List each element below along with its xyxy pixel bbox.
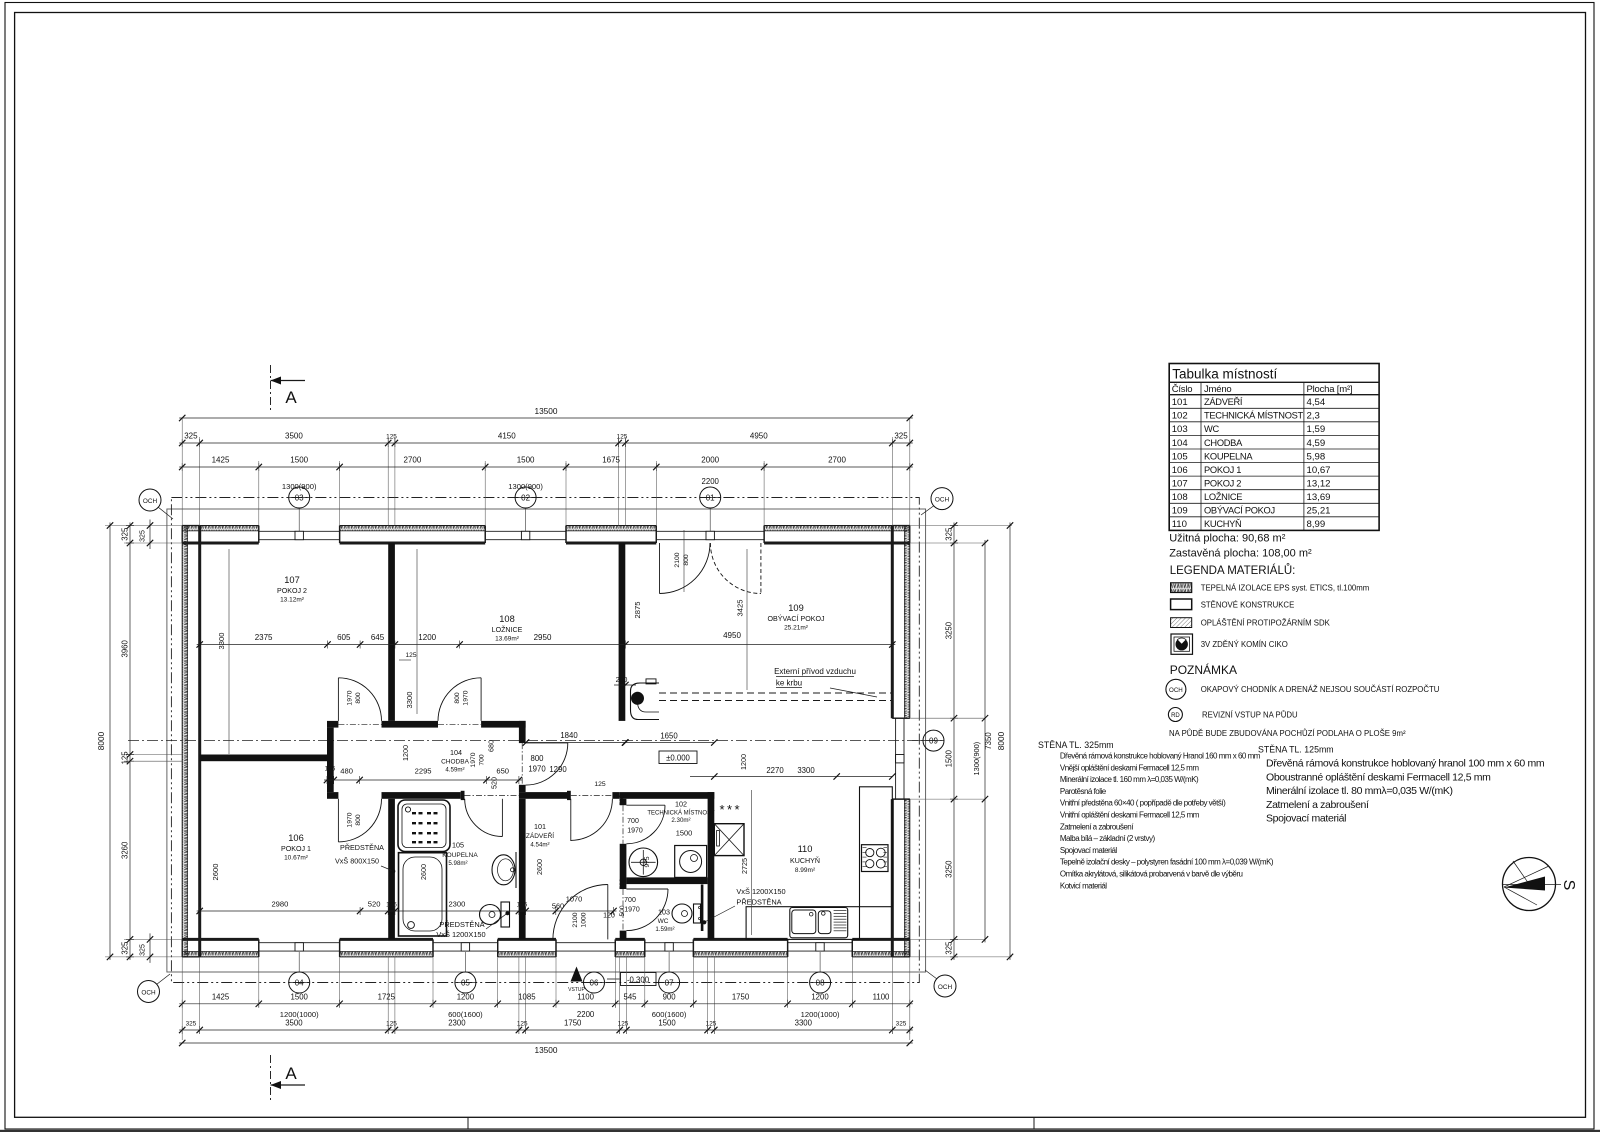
svg-text:1500: 1500	[290, 456, 308, 465]
svg-text:3300: 3300	[795, 1019, 813, 1028]
svg-text:1970: 1970	[528, 765, 546, 774]
svg-text:REVIZNÍ VSTUP NA PŮDU: REVIZNÍ VSTUP NA PŮDU	[1202, 710, 1298, 719]
svg-text:3250: 3250	[945, 621, 954, 639]
svg-text:Jméno: Jméno	[1204, 384, 1232, 395]
svg-text:Vnitřní předstěna 60×40 ( popř: Vnitřní předstěna 60×40 ( popřípadě dle …	[1060, 799, 1226, 808]
svg-text:13500: 13500	[534, 1045, 557, 1055]
svg-text:520: 520	[368, 900, 381, 909]
svg-text:1840: 1840	[560, 731, 578, 740]
svg-text:1750: 1750	[732, 992, 750, 1001]
svg-text:Externí přívod vzduchu: Externí přívod vzduchu	[774, 667, 856, 676]
svg-text:1425: 1425	[212, 992, 230, 1001]
svg-text:975: 975	[644, 856, 651, 867]
svg-text:520: 520	[490, 777, 499, 789]
svg-text:1300(900): 1300(900)	[282, 482, 317, 491]
svg-text:*: *	[734, 802, 739, 817]
svg-text:500: 500	[619, 905, 626, 916]
svg-text:2270: 2270	[766, 766, 784, 775]
svg-text:*: *	[727, 802, 732, 817]
svg-text:Minerální izolace tl. 80 mmλ=0: Minerální izolace tl. 80 mmλ=0,035 W/(mK…	[1266, 785, 1453, 797]
svg-text:1500: 1500	[676, 829, 692, 838]
svg-text:500: 500	[619, 878, 626, 889]
svg-text:2000: 2000	[701, 456, 719, 465]
svg-text:101: 101	[534, 822, 546, 831]
svg-text:325: 325	[140, 944, 147, 956]
svg-text:Plocha [m²]: Plocha [m²]	[1307, 384, 1353, 395]
svg-text:325: 325	[945, 941, 954, 955]
svg-text:480: 480	[340, 767, 353, 776]
svg-text:OCH: OCH	[143, 498, 158, 505]
svg-text:109: 109	[1172, 506, 1188, 517]
svg-text:09: 09	[929, 737, 938, 746]
svg-text:Dřevěná rámová konstrukce hobl: Dřevěná rámová konstrukce hoblovaný Hran…	[1060, 752, 1261, 761]
svg-text:125: 125	[618, 1021, 629, 1028]
svg-text:TEPELNÁ IZOLACE EPS syst. ETIC: TEPELNÁ IZOLACE EPS syst. ETICS, tl.100m…	[1201, 584, 1370, 593]
svg-text:110: 110	[1172, 519, 1187, 530]
svg-text:OKAPOVÝ CHODNÍK A DRENÁŽ NEJSO: OKAPOVÝ CHODNÍK A DRENÁŽ NEJSOU SOUČÁSTÍ…	[1201, 685, 1440, 694]
svg-text:NA PŮDĚ BUDE ZBUDOVÁNA POCHŮZÍ: NA PŮDĚ BUDE ZBUDOVÁNA POCHŮZÍ PODLAHA O…	[1169, 729, 1406, 738]
svg-text:1970: 1970	[470, 752, 477, 767]
svg-text:2200: 2200	[702, 477, 720, 486]
svg-text:1970: 1970	[624, 907, 640, 914]
svg-text:3425: 3425	[736, 600, 745, 617]
svg-text:ke krbu: ke krbu	[776, 679, 802, 688]
svg-text:*: *	[719, 802, 724, 817]
svg-text:325: 325	[945, 527, 954, 541]
svg-text:05: 05	[461, 979, 470, 988]
svg-text:108: 108	[499, 614, 515, 624]
svg-text:2100: 2100	[572, 912, 579, 927]
svg-text:120: 120	[603, 913, 615, 920]
svg-text:325: 325	[186, 1021, 197, 1028]
svg-text:Zastavěná plocha: 108,00 m²: Zastavěná plocha: 108,00 m²	[1169, 548, 1312, 560]
svg-text:1200: 1200	[739, 754, 748, 770]
svg-text:110: 110	[798, 844, 813, 854]
svg-text:OCH: OCH	[1169, 687, 1183, 694]
svg-text:3250: 3250	[945, 860, 954, 878]
svg-text:560: 560	[552, 902, 564, 911]
svg-text:1970: 1970	[627, 828, 643, 835]
svg-text:4950: 4950	[723, 631, 741, 640]
svg-text:102: 102	[675, 800, 687, 809]
svg-text:POKOJ 2: POKOJ 2	[1204, 479, 1241, 489]
svg-text:325: 325	[894, 432, 908, 441]
svg-text:2980: 2980	[271, 900, 288, 909]
svg-text:4.54m²: 4.54m²	[530, 842, 549, 849]
svg-text:PŘEDSTĚNA: PŘEDSTĚNA	[439, 920, 484, 929]
svg-text:2600: 2600	[419, 864, 428, 880]
svg-text:605: 605	[337, 633, 351, 642]
svg-text:S: S	[1560, 880, 1577, 891]
svg-text:STĚNA TL. 325mm: STĚNA TL. 325mm	[1038, 740, 1114, 750]
svg-text:10,67: 10,67	[1307, 465, 1331, 476]
svg-text:25,21: 25,21	[1307, 506, 1331, 517]
svg-text:125: 125	[517, 1021, 528, 1028]
svg-text:KOUPELNA: KOUPELNA	[1204, 451, 1253, 461]
svg-text:Spojovací materiál: Spojovací materiál	[1060, 846, 1118, 855]
svg-text:1425: 1425	[212, 456, 230, 465]
svg-text:125: 125	[405, 652, 416, 659]
svg-text:07: 07	[665, 979, 674, 988]
svg-text:OBÝVACÍ POKOJ: OBÝVACÍ POKOJ	[1204, 506, 1275, 516]
svg-text:101: 101	[1172, 397, 1188, 408]
svg-text:106: 106	[288, 833, 304, 843]
svg-text:325: 325	[121, 941, 130, 955]
svg-text:800: 800	[454, 692, 461, 704]
svg-text:2600: 2600	[211, 864, 220, 881]
svg-text:1500: 1500	[658, 1019, 676, 1028]
svg-text:125: 125	[706, 1021, 717, 1028]
svg-text:8.99m²: 8.99m²	[795, 867, 816, 874]
svg-text:VxŠ 800X150: VxŠ 800X150	[335, 857, 379, 866]
svg-text:500: 500	[619, 794, 626, 805]
svg-text:2375: 2375	[255, 633, 273, 642]
svg-text:125: 125	[594, 781, 606, 788]
svg-text:680: 680	[487, 740, 496, 752]
svg-text:1970: 1970	[463, 690, 470, 705]
svg-text:1.59m²: 1.59m²	[655, 926, 674, 933]
svg-text:Užitná plocha: 90,68 m²: Užitná plocha: 90,68 m²	[1169, 533, 1286, 545]
svg-text:2875: 2875	[633, 602, 642, 619]
svg-text:105: 105	[452, 841, 464, 850]
svg-text:03: 03	[295, 494, 304, 503]
svg-text:3500: 3500	[285, 1019, 303, 1028]
svg-text:8,99: 8,99	[1307, 519, 1326, 530]
svg-text:125: 125	[617, 434, 628, 441]
svg-text:2300: 2300	[448, 900, 465, 909]
svg-text:3500: 3500	[285, 432, 303, 441]
svg-text:LOŽNICE: LOŽNICE	[492, 625, 523, 634]
svg-text:3300: 3300	[797, 766, 815, 775]
svg-text:Malba bílá – základní (2 vrstv: Malba bílá – základní (2 vrstvy)	[1060, 834, 1156, 843]
svg-text:CHODBA: CHODBA	[441, 759, 469, 766]
svg-text:CHODBA: CHODBA	[1204, 438, 1243, 448]
svg-text:VxŠ 1200X150: VxŠ 1200X150	[736, 887, 785, 896]
svg-text:800: 800	[355, 814, 362, 826]
svg-text:325: 325	[896, 1021, 907, 1028]
svg-text:1200: 1200	[401, 745, 410, 761]
svg-text:25.21m²: 25.21m²	[784, 625, 809, 632]
svg-text:ZÁDVEŘÍ: ZÁDVEŘÍ	[526, 831, 554, 840]
svg-text:±0.000: ±0.000	[666, 754, 690, 763]
svg-text:1,59: 1,59	[1307, 424, 1326, 435]
svg-text:5,98: 5,98	[1307, 451, 1326, 462]
svg-text:8000: 8000	[996, 731, 1006, 750]
svg-text:107: 107	[284, 575, 300, 585]
svg-text:TECHNICKÁ MÍSTNOST: TECHNICKÁ MÍSTNOST	[647, 810, 715, 817]
svg-text:102: 102	[1172, 411, 1188, 422]
svg-text:1970: 1970	[347, 690, 354, 705]
svg-text:4150: 4150	[498, 432, 516, 441]
svg-text:2725: 2725	[740, 858, 749, 874]
svg-text:1300(900): 1300(900)	[508, 482, 543, 491]
svg-text:1500: 1500	[291, 992, 309, 1001]
svg-text:06: 06	[590, 979, 599, 988]
svg-text:2700: 2700	[828, 456, 846, 465]
svg-text:13,69: 13,69	[1307, 492, 1331, 503]
svg-text:125: 125	[121, 751, 130, 765]
svg-text:4,54: 4,54	[1307, 397, 1326, 408]
svg-text:LOŽNICE: LOŽNICE	[1204, 492, 1242, 502]
svg-text:325: 325	[121, 527, 130, 541]
svg-text:OCH: OCH	[938, 984, 953, 991]
svg-text:104: 104	[450, 748, 462, 757]
svg-text:1970: 1970	[347, 812, 354, 827]
svg-text:LEGENDA MATERIÁLŮ:: LEGENDA MATERIÁLŮ:	[1170, 564, 1296, 577]
svg-text:13,12: 13,12	[1307, 479, 1331, 490]
svg-text:PŘEDSTĚNA: PŘEDSTĚNA	[340, 843, 384, 852]
svg-text:STĚNA TL. 125mm: STĚNA TL. 125mm	[1258, 745, 1334, 755]
svg-text:4.59m²: 4.59m²	[445, 767, 464, 774]
svg-text:A: A	[285, 1064, 297, 1083]
svg-text:KUCHYŇ: KUCHYŇ	[1204, 519, 1241, 529]
svg-text:2.30m²: 2.30m²	[671, 817, 690, 824]
svg-text:01: 01	[706, 494, 715, 503]
svg-text:125: 125	[386, 434, 397, 441]
svg-text:Tepelně izolační desky – polys: Tepelně izolační desky – polystyren fasá…	[1060, 858, 1274, 867]
svg-text:13.12m²: 13.12m²	[280, 597, 305, 604]
svg-text:A: A	[285, 388, 297, 407]
svg-text:2600: 2600	[535, 859, 544, 875]
svg-text:Vnější opláštění deskami Ferma: Vnější opláštění deskami Fermacell 12,5 …	[1060, 763, 1199, 772]
svg-text:7350: 7350	[984, 732, 993, 750]
svg-text:125: 125	[386, 902, 397, 909]
svg-text:1290: 1290	[549, 765, 567, 774]
svg-text:04: 04	[295, 979, 304, 988]
svg-text:08: 08	[816, 979, 825, 988]
svg-text:8000: 8000	[96, 731, 106, 750]
svg-text:2295: 2295	[415, 767, 432, 776]
svg-text:1500: 1500	[945, 749, 954, 767]
svg-text:1650: 1650	[660, 732, 678, 741]
svg-text:1085: 1085	[518, 992, 536, 1001]
svg-text:3960: 3960	[121, 639, 130, 657]
svg-text:325: 325	[140, 530, 147, 542]
svg-text:645: 645	[371, 633, 385, 642]
svg-text:OCH: OCH	[935, 497, 950, 504]
svg-text:800: 800	[530, 754, 544, 763]
svg-text:02: 02	[521, 494, 530, 503]
svg-text:700: 700	[624, 897, 636, 904]
svg-text:ZÁDVEŘÍ: ZÁDVEŘÍ	[1204, 397, 1243, 407]
svg-text:1200: 1200	[811, 992, 829, 1001]
svg-text:STĚNOVÉ KONSTRUKCE: STĚNOVÉ KONSTRUKCE	[1201, 600, 1295, 609]
svg-text:2300: 2300	[448, 1019, 466, 1028]
svg-text:800: 800	[355, 692, 362, 704]
svg-text:Dřevěná rámová konstrukce hobl: Dřevěná rámová konstrukce hoblovaný hran…	[1266, 758, 1545, 770]
svg-text:Zatmelení a zabroušení: Zatmelení a zabroušení	[1060, 822, 1134, 831]
svg-text:OPLÁŠTĚNÍ PROTIPOŽÁRNÍM SDK: OPLÁŠTĚNÍ PROTIPOŽÁRNÍM SDK	[1201, 619, 1331, 628]
svg-text:650: 650	[496, 767, 509, 776]
svg-text:KOUPELNA: KOUPELNA	[442, 852, 478, 859]
svg-text:1725: 1725	[378, 992, 396, 1001]
svg-text:Minerální izolace tl. 160 mm λ: Minerální izolace tl. 160 mm λ=0,035 W/(…	[1060, 775, 1199, 784]
svg-text:RD: RD	[1171, 713, 1180, 719]
svg-text:108: 108	[1172, 492, 1188, 503]
svg-text:2,3: 2,3	[1307, 411, 1320, 422]
svg-text:Omítka akrylátová, silikátová: Omítka akrylátová, silikátová probarvená…	[1060, 870, 1243, 879]
svg-text:1750: 1750	[564, 1019, 582, 1028]
svg-text:WC: WC	[658, 918, 669, 925]
svg-text:3260: 3260	[121, 841, 130, 859]
svg-text:4,59: 4,59	[1307, 438, 1326, 449]
svg-text:800: 800	[683, 554, 690, 566]
svg-text:2100: 2100	[674, 552, 681, 567]
svg-text:1000: 1000	[581, 912, 588, 927]
svg-text:103: 103	[1172, 424, 1188, 435]
svg-text:103: 103	[658, 908, 670, 917]
svg-text:Parotěsná folie: Parotěsná folie	[1060, 787, 1107, 796]
svg-text:1675: 1675	[602, 456, 620, 465]
svg-text:Spojovací materiál: Spojovací materiál	[1266, 813, 1346, 825]
svg-text:1200: 1200	[457, 992, 475, 1001]
svg-text:4950: 4950	[750, 432, 768, 441]
svg-text:2950: 2950	[534, 633, 552, 642]
svg-text:5.98m²: 5.98m²	[448, 860, 467, 867]
svg-text:13.69m²: 13.69m²	[495, 636, 520, 643]
svg-text:Vnitřní opláštění deskami Ferm: Vnitřní opláštění deskami Fermacell 12,5…	[1060, 811, 1200, 820]
svg-text:1100: 1100	[577, 992, 594, 1001]
svg-text:900: 900	[663, 992, 677, 1001]
svg-text:OBÝVACÍ POKOJ: OBÝVACÍ POKOJ	[767, 614, 824, 623]
svg-text:KUCHYŇ: KUCHYŇ	[790, 856, 820, 865]
svg-text:POKOJ 2: POKOJ 2	[277, 587, 307, 595]
svg-text:Tabulka místností: Tabulka místností	[1172, 367, 1277, 382]
svg-text:325: 325	[184, 432, 198, 441]
svg-text:2700: 2700	[404, 456, 422, 465]
svg-text:VxŠ 1200X150: VxŠ 1200X150	[436, 930, 485, 939]
svg-text:1500: 1500	[517, 456, 535, 465]
svg-text:1100: 1100	[873, 992, 890, 1001]
svg-text:545: 545	[623, 992, 637, 1001]
svg-text:POKOJ 1: POKOJ 1	[281, 845, 311, 853]
svg-text:106: 106	[1172, 465, 1188, 476]
svg-text:POKOJ 1: POKOJ 1	[1204, 465, 1241, 475]
svg-text:Číslo: Číslo	[1172, 384, 1193, 395]
svg-text:-0.300: -0.300	[627, 976, 650, 985]
svg-text:POZNÁMKA: POZNÁMKA	[1170, 662, 1237, 677]
svg-text:125: 125	[517, 902, 528, 909]
svg-text:125: 125	[325, 766, 336, 773]
svg-text:Zatmelení a zabroušení: Zatmelení a zabroušení	[1266, 799, 1369, 811]
svg-text:WC: WC	[1204, 424, 1219, 434]
svg-text:3V ZDĚNÝ KOMÍN CIKO: 3V ZDĚNÝ KOMÍN CIKO	[1201, 640, 1288, 649]
svg-text:Oboustranné opláštění deskami: Oboustranné opláštění deskami Fermacell …	[1266, 771, 1491, 783]
svg-text:TECHNICKÁ MÍSTNOST: TECHNICKÁ MÍSTNOST	[1204, 411, 1304, 421]
svg-text:3300: 3300	[217, 633, 226, 650]
svg-text:700: 700	[627, 818, 639, 825]
svg-text:3300: 3300	[405, 692, 414, 709]
svg-text:1300(900): 1300(900)	[972, 742, 981, 776]
svg-text:107: 107	[1172, 479, 1188, 490]
svg-text:PŘEDSTĚNA: PŘEDSTĚNA	[736, 898, 781, 907]
svg-text:200: 200	[616, 677, 628, 684]
svg-text:109: 109	[788, 603, 804, 613]
svg-text:1070: 1070	[566, 895, 582, 904]
svg-text:125: 125	[386, 1021, 397, 1028]
svg-text:104: 104	[1172, 438, 1189, 449]
svg-text:OCH: OCH	[141, 990, 156, 997]
svg-text:Kotvicí materiál: Kotvicí materiál	[1060, 881, 1107, 890]
svg-text:1200: 1200	[418, 633, 436, 642]
svg-text:105: 105	[1172, 451, 1188, 462]
svg-text:700: 700	[479, 754, 486, 766]
svg-text:13500: 13500	[534, 406, 557, 416]
svg-text:10.67m²: 10.67m²	[284, 855, 309, 862]
